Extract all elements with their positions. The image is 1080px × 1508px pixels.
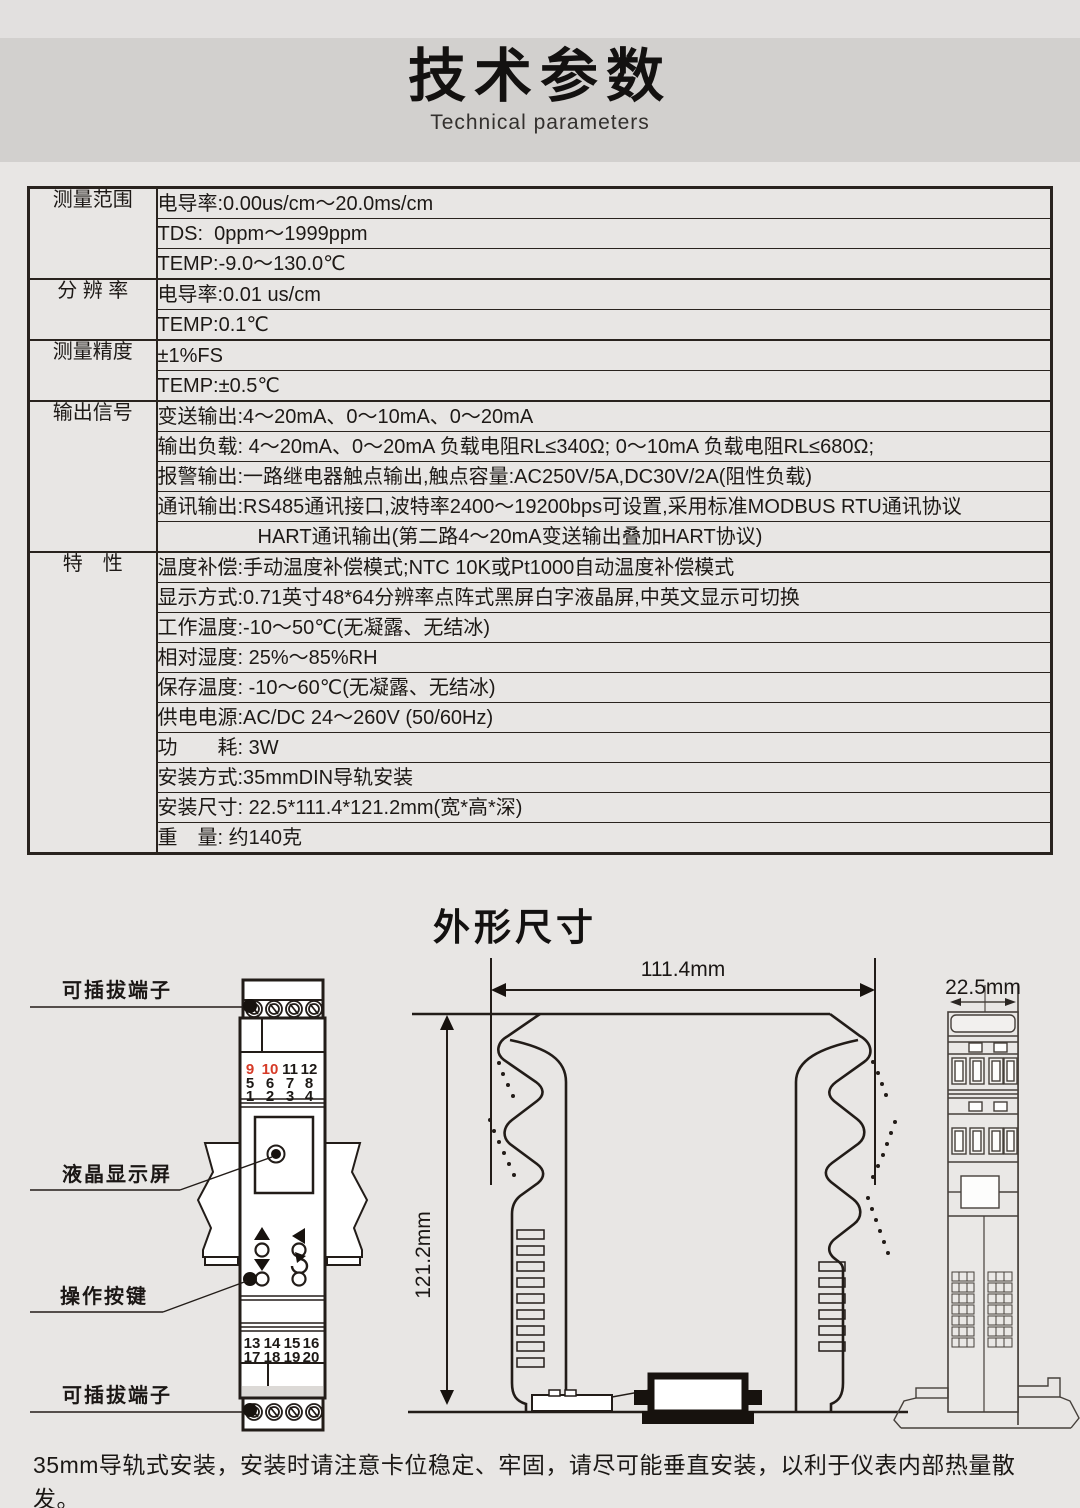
- spec-group-label: 测量范围: [29, 188, 157, 280]
- label-lcd: 液晶显示屏: [62, 1162, 172, 1186]
- spec-value-cell: TEMP:±0.5℃: [157, 371, 1052, 402]
- dim-depth-label: 22.5mm: [945, 976, 1021, 999]
- mounting-note: 35mm导轨式安装，安装时请注意卡位稳定、牢固，请尽可能垂直安装，以利于仪表内部…: [33, 1446, 1053, 1508]
- front-terminal-block-bottom: [243, 1398, 323, 1430]
- vent-slots-left: [517, 1230, 544, 1367]
- spec-value-cell: 变送输出:4～20mA、0～10mA、0～20mA: [157, 401, 1052, 432]
- dim-width-label: 111.4mm: [641, 958, 725, 981]
- spec-value-cell: TEMP:0.1℃: [157, 310, 1052, 341]
- din-clip-latch: [532, 1390, 650, 1411]
- terminal-number: 19: [284, 1349, 301, 1366]
- spec-value-cell: 重 量: 约140克: [157, 823, 1052, 854]
- terminal-number: 17: [244, 1349, 261, 1366]
- terminal-number: 2: [266, 1088, 274, 1105]
- spec-value-cell: 功 耗: 3W: [157, 733, 1052, 763]
- spec-value-cell: 电导率:0.00us/cm～20.0ms/cm: [157, 188, 1052, 219]
- side-view: [408, 958, 908, 1424]
- dimension-height: [440, 1015, 454, 1405]
- page-subtitle: Technical parameters: [0, 111, 1080, 135]
- dim-height-label: 121.2mm: [412, 1211, 435, 1299]
- spec-value-cell: ±1%FS: [157, 340, 1052, 371]
- outline-drawing: 9 10 11 12 5 6 7 8 1 2 3 4 13 14 15 16 1…: [0, 890, 1080, 1470]
- title-band: 技术参数 Technical parameters: [0, 38, 1080, 162]
- datasheet-page: 技术参数 Technical parameters 测量范围电导率:0.00us…: [0, 0, 1080, 1508]
- spec-value-cell: 安装方式:35mmDIN导轨安装: [157, 763, 1052, 793]
- spec-value-cell: 安装尺寸: 22.5*111.4*121.2mm(宽*高*深): [157, 793, 1052, 823]
- label-terminal-bottom: 可插拔端子: [62, 1383, 172, 1407]
- up-key: [256, 1244, 269, 1257]
- vent-slots-right: [819, 1262, 845, 1351]
- spec-value-cell: 显示方式:0.71英寸48*64分辨率点阵式黑屏白字液晶屏,中英文显示可切换: [157, 583, 1052, 613]
- down-key: [256, 1273, 269, 1286]
- terminal-number: 18: [264, 1349, 281, 1366]
- dotted-lines: [488, 1060, 897, 1255]
- spec-group-label: 测量精度: [29, 340, 157, 401]
- lcd-anchor-dot: [271, 1149, 281, 1159]
- spec-value-cell: 温度补偿:手动温度补偿模式;NTC 10K或Pt1000自动温度补偿模式: [157, 552, 1052, 583]
- spec-value-cell: 保存温度: -10～60℃(无凝露、无结冰): [157, 673, 1052, 703]
- spec-value-cell: 输出负载: 4～20mA、0～20mA 负载电阻RL≤340Ω; 0～10mA …: [157, 432, 1052, 462]
- spec-value-cell: 供电电源:AC/DC 24～260V (50/60Hz): [157, 703, 1052, 733]
- leader-anchor-dot: [243, 999, 257, 1013]
- leader-anchor-dot: [243, 1403, 257, 1417]
- din-clip: [634, 1376, 762, 1424]
- spec-value-cell: 通讯输出:RS485通讯接口,波特率2400～19200bps可设置,采用标准M…: [157, 492, 1052, 522]
- terminal-number: 1: [246, 1088, 254, 1105]
- dimension-width: [491, 958, 875, 1185]
- top-terminal-row-2: [952, 1128, 1017, 1154]
- spec-value-cell: 电导率:0.01 us/cm: [157, 279, 1052, 310]
- spec-group-label: 分 辨 率: [29, 279, 157, 340]
- label-terminal-top: 可插拔端子: [62, 978, 172, 1002]
- spec-table: 测量范围电导率:0.00us/cm～20.0ms/cmTDS: 0ppm～199…: [27, 186, 1053, 855]
- top-view: [894, 985, 1079, 1428]
- spec-value-cell: 相对湿度: 25%～85%RH: [157, 643, 1052, 673]
- spec-group-label: 特 性: [29, 552, 157, 854]
- terminal-number: 3: [286, 1088, 294, 1105]
- top-strip: [0, 0, 1080, 38]
- top-display-window: [961, 1176, 999, 1208]
- terminal-number: 20: [303, 1349, 320, 1366]
- leader-anchor-dot: [243, 1272, 257, 1286]
- spec-value-cell: TDS: 0ppm～1999ppm: [157, 219, 1052, 249]
- spec-value-cell: 报警输出:一路继电器触点输出,触点容量:AC250V/5A,DC30V/2A(阻…: [157, 462, 1052, 492]
- spec-table-body: 测量范围电导率:0.00us/cm～20.0ms/cmTDS: 0ppm～199…: [29, 188, 1052, 854]
- label-buttons: 操作按键: [60, 1284, 148, 1308]
- spec-group-label: 输出信号: [29, 401, 157, 552]
- spec-value-cell: HART通讯输出(第二路4～20mA变送输出叠加HART协议): [157, 522, 1052, 553]
- top-terminal-row-1: [952, 1058, 1017, 1084]
- front-terminal-block-top: [243, 980, 323, 1018]
- spec-value-cell: TEMP:-9.0～130.0℃: [157, 249, 1052, 280]
- spec-value-cell: 工作温度:-10～50℃(无凝露、无结冰): [157, 613, 1052, 643]
- page-title: 技术参数: [0, 38, 1080, 111]
- terminal-number: 4: [305, 1088, 314, 1105]
- enter-key: [293, 1273, 306, 1286]
